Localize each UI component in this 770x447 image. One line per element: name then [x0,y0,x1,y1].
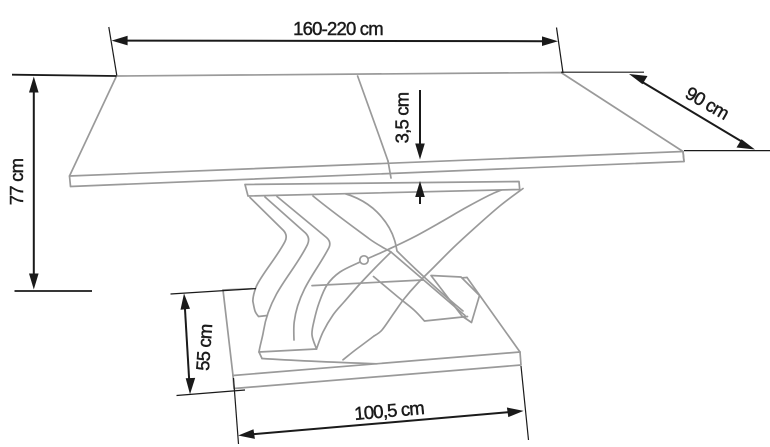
svg-text:3,5 cm: 3,5 cm [392,92,413,143]
svg-text:160-220 cm: 160-220 cm [293,18,383,39]
svg-text:55 cm: 55 cm [192,323,216,371]
svg-text:90 cm: 90 cm [682,82,733,124]
svg-text:77 cm: 77 cm [6,158,27,205]
